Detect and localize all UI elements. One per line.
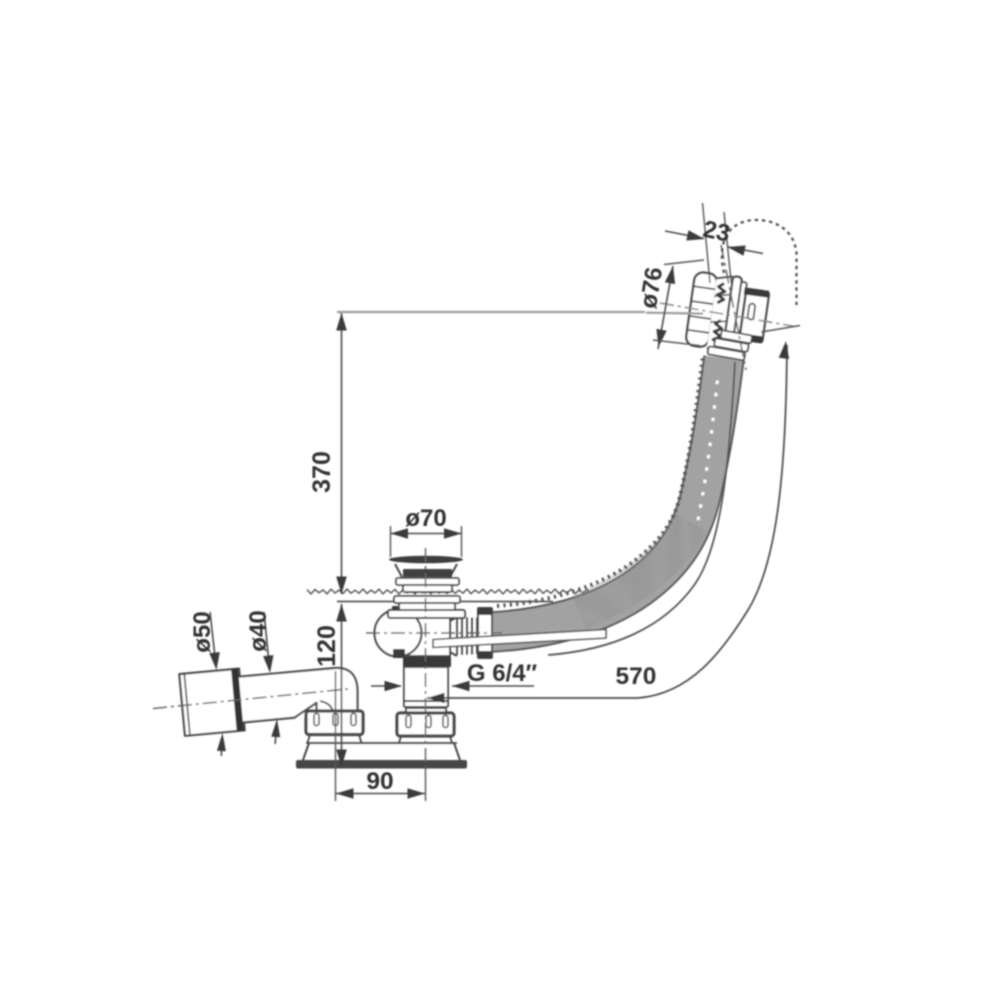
svg-text:120: 120 [313,625,341,667]
svg-text:570: 570 [616,663,657,690]
svg-text:ø70: ø70 [405,505,446,532]
svg-text:G 6/4″: G 6/4″ [467,660,538,687]
svg-text:23: 23 [701,216,733,248]
svg-text:ø40: ø40 [245,610,272,651]
svg-text:90: 90 [366,768,393,795]
svg-text:ø50: ø50 [189,611,216,652]
svg-text:370: 370 [308,451,336,493]
